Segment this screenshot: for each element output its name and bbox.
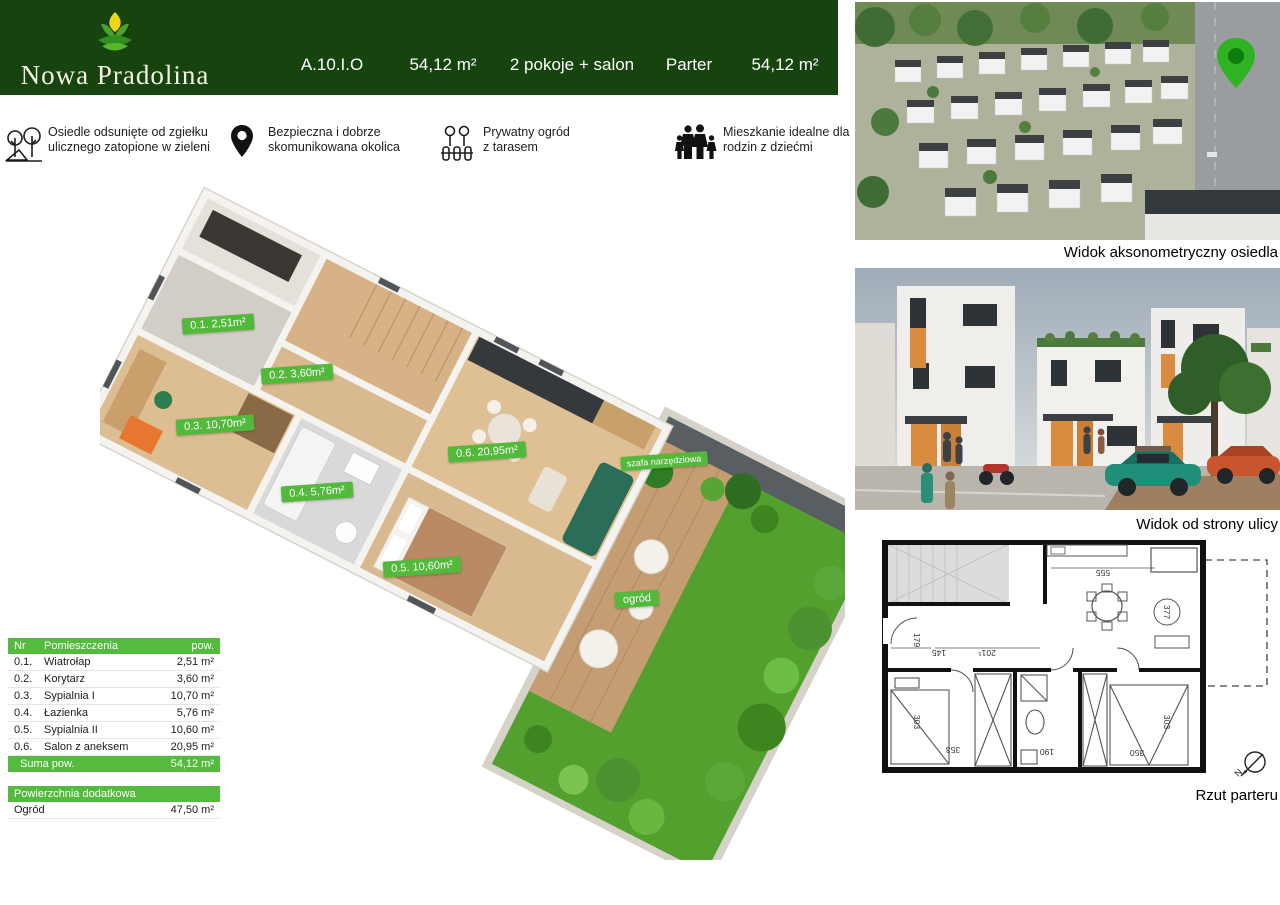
dim-303-left: 303 (912, 715, 922, 729)
rooms-table: Nr Pomieszczenia pow. 0.1. Wiatrołap 2,5… (8, 638, 220, 819)
floorplan-2d-drawing: 555 377 179 145 201⁵ 303 353 190 350 303 (855, 540, 1280, 782)
dim-555: 555 (1096, 568, 1110, 578)
label-garden: ogród (614, 589, 659, 608)
family-icon (675, 124, 717, 160)
rooms-table-header: Nr Pomieszczenia pow. (8, 638, 220, 654)
table-spacer (8, 772, 220, 786)
dim-303-right: 303 (1162, 715, 1172, 729)
feature-text: Mieszkanie idealne dlarodzin z dziećmi (723, 125, 849, 155)
unit-area: 54,12 m² (409, 55, 476, 75)
col-name: Pomieszczenia (44, 640, 156, 652)
flyer-page: Nowa Pradolina A.10.I.O 54,12 m² 2 pokoj… (0, 0, 1280, 905)
dim-353: 353 (946, 745, 960, 755)
dim-377: 377 (1162, 605, 1172, 619)
aerial-render (855, 2, 1280, 240)
street-view-image (855, 268, 1280, 510)
table-row: 0.3. Sypialnia I 10,70 m² (8, 688, 220, 705)
caption-plan2d: Rzut parteru (1195, 787, 1278, 804)
street-render (855, 268, 1280, 510)
brand-name: Nowa Pradolina (10, 60, 220, 91)
feature-text: Osiedle odsunięte od zgiełkuulicznego za… (48, 125, 210, 155)
brand: Nowa Pradolina (10, 6, 220, 91)
dim-145: 145 (932, 648, 946, 658)
dim-350: 350 (1130, 748, 1144, 758)
feature-text: Bezpieczna i dobrzeskomunikowana okolica (268, 125, 400, 155)
feature-text: Prywatny ogródz tarasem (483, 125, 570, 155)
location-pin-icon (230, 124, 254, 158)
trees-icon (5, 124, 43, 164)
garden-fence-icon (440, 124, 474, 162)
caption-street: Widok od strony ulicy (1136, 516, 1278, 533)
unit-rooms: 2 pokoje + salon (510, 55, 634, 75)
table-total-row: Suma pow. 54,12 m² (8, 756, 220, 772)
table-row: Ogród 47,50 m² (8, 802, 220, 819)
dim-179: 179 (912, 633, 922, 647)
table-row: 0.6. Salon z aneksem 20,95 m² (8, 739, 220, 756)
brand-logo-icon (92, 10, 138, 58)
unit-floor: Parter (666, 55, 712, 75)
table-row: 0.1. Wiatrołap 2,51 m² (8, 654, 220, 671)
table-row: 0.5. Sypialnia II 10,60 m² (8, 722, 220, 739)
caption-aerial: Widok aksonometryczny osiedla (1064, 244, 1278, 261)
col-area: pow. (156, 640, 220, 652)
unit-area-2: 54,12 m² (751, 55, 818, 75)
table-extra-header: Powierzchnia dodatkowa (8, 786, 220, 802)
aerial-view-image (855, 2, 1280, 240)
dim-190: 190 (1040, 747, 1054, 757)
table-row: 0.4. Łazienka 5,76 m² (8, 705, 220, 722)
col-nr: Nr (8, 640, 44, 652)
floorplan-2d-image: 555 377 179 145 201⁵ 303 353 190 350 303 (855, 540, 1280, 782)
dim-201: 201⁵ (978, 648, 996, 658)
header-bar: Nowa Pradolina A.10.I.O 54,12 m² 2 pokoj… (0, 0, 838, 95)
table-row: 0.2. Korytarz 3,60 m² (8, 671, 220, 688)
unit-code: A.10.I.O (301, 55, 363, 75)
